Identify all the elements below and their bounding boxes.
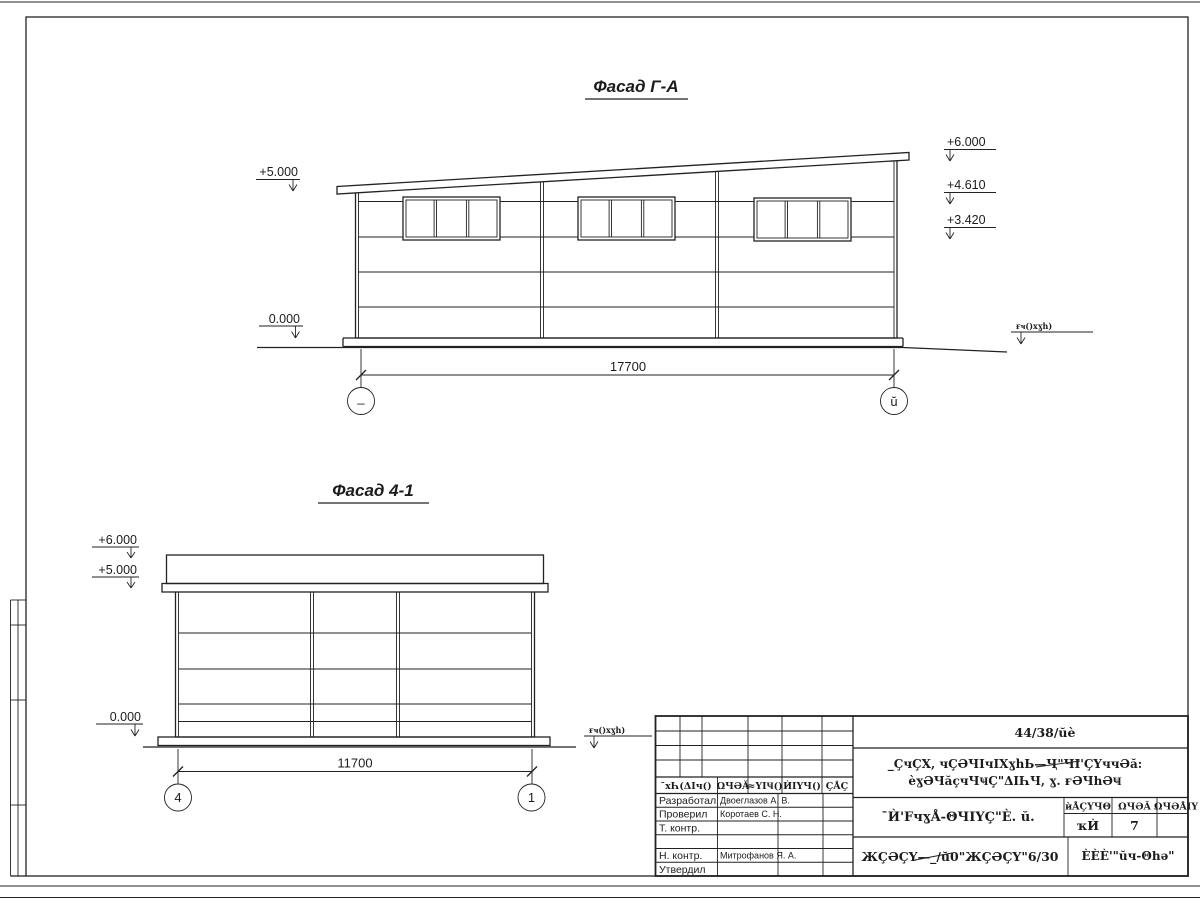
- left-margin-stamp: [11, 600, 27, 876]
- elev-plus5-label: +5.000: [259, 165, 298, 179]
- rev-col-podp: ЍIҮЧ(): [783, 780, 821, 792]
- dim-11700-label: 11700: [337, 756, 372, 771]
- ground-label: ғҹ()xɣһ): [1016, 321, 1052, 331]
- dim-17700-label: 17700: [610, 359, 646, 374]
- title-block: ¯хҺ(ΔIч() ΩЧӘĂ ≈ҮIҸ() ЍIҮЧ() ÇÅÇ Разрабо…: [656, 716, 1199, 876]
- sheet-title: ¯Ѝ'FчɣÅ-ΘЧIҮÇ"È. ŭ.: [881, 809, 1034, 825]
- project-title-line1: _ÇчÇХ, чÇӘЧIчIХɣhЬ—Ҷ"ЧI'ÇҮччӘă:: [888, 757, 1142, 772]
- elev-plus5-label: +5.000: [98, 563, 137, 577]
- dimension-17700: 17700: [356, 349, 899, 387]
- project-title-line2: èɣӘЧăçчЧҸÇ"ΔIҺЧ, ɣ. ғӘЧһӘҸ: [908, 774, 1121, 788]
- facade-41: Фасад 4-1 +6.000 +5.000: [92, 481, 652, 811]
- role-label: Утвердил: [659, 864, 706, 876]
- doc-code: ЖÇӘÇҮ—_/ŭ0"ЖÇӘÇҮ"6/30: [861, 849, 1058, 865]
- elevation-mark: +6.000 +5.000 0.000: [92, 533, 143, 736]
- rev-col-dok: ≈ҮIҸ(): [747, 781, 782, 792]
- rev-col-list: ΩЧӘĂ: [717, 780, 750, 792]
- rev-col-izm: ¯хҺ(ΔIч(): [660, 781, 711, 792]
- company-name: ÈÈÈ'"ŭч-Θһә": [1082, 848, 1175, 863]
- drawing-sheet: Фасад Г-А: [0, 0, 1200, 900]
- facade-ga: Фасад Г-А: [256, 77, 1093, 415]
- dimension-11700: 11700: [173, 749, 537, 784]
- rev-col-data: ÇÅÇ: [826, 780, 849, 792]
- elevation-mark: +5.000 0.000: [256, 165, 303, 338]
- elev-plus6-label: +6.000: [947, 135, 986, 149]
- axis-bubbles: _ ŭ: [348, 388, 908, 415]
- elev-plus4610-label: +4.610: [947, 178, 986, 192]
- window-strip: [403, 197, 851, 241]
- facade-ga-title: Фасад Г-А: [593, 77, 678, 96]
- mini-col-list: ΩЧӘĂ: [1118, 801, 1151, 813]
- axis-right-label: ŭ: [890, 394, 897, 409]
- axis-4-label: 4: [174, 790, 181, 805]
- elev-plus3420-label: +3.420: [947, 213, 986, 227]
- elev-0-label: 0.000: [110, 710, 141, 724]
- doc-number: 44/38/ŭè: [1015, 725, 1076, 740]
- axis-left-label: _: [356, 390, 365, 405]
- role-name: Двоеглазов А. В.: [720, 796, 790, 806]
- axis-bubbles: 4 1: [165, 784, 546, 811]
- role-label: Проверил: [659, 809, 707, 821]
- role-label: Разработал: [659, 795, 716, 807]
- role-label: Т. контр.: [659, 823, 700, 835]
- facade-41-title: Фасад 4-1: [332, 481, 413, 500]
- elev-0-label: 0.000: [269, 312, 300, 326]
- mini-col-listov: ΩЧӘÅIҮ: [1154, 801, 1198, 813]
- mini-val-stadia: ҡЍ: [1077, 818, 1099, 833]
- mini-val-list: 7: [1130, 818, 1139, 833]
- mini-col-stadia: ѝÅÇҮЧΘ: [1065, 801, 1111, 813]
- axis-1-label: 1: [528, 790, 535, 805]
- cad-canvas: Фасад Г-А: [0, 0, 1200, 900]
- ground-label: ғҹ()xɣһ): [589, 725, 625, 735]
- role-name: Митрофанов Я. А.: [720, 851, 796, 861]
- role-name: Коротаев С. Н.: [720, 809, 782, 819]
- ground-level-mark: ғҹ()xɣһ): [1011, 321, 1093, 344]
- elevation-mark: +6.000 +4.610 +3.420: [944, 135, 996, 239]
- elev-plus6-label: +6.000: [98, 533, 137, 547]
- role-label: Н. контр.: [659, 850, 702, 862]
- ground-level-mark: ғҹ()xɣһ): [584, 725, 652, 748]
